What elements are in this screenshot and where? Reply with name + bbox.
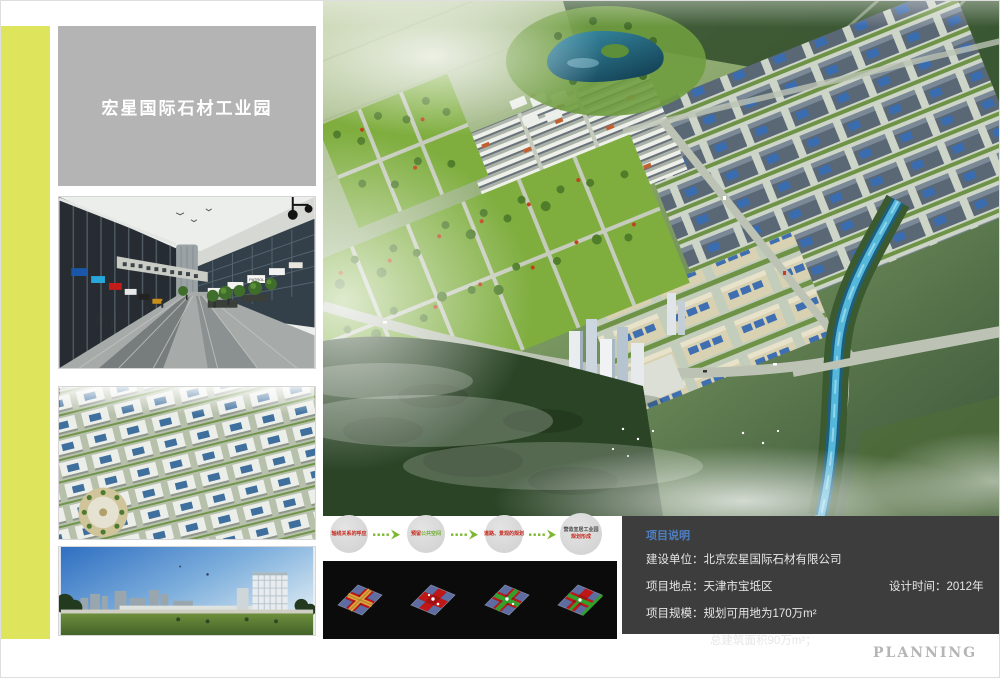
info-value: 北京宏星国际石材有限公司 <box>704 554 842 566</box>
storefront-sign-label: PATROL <box>249 277 265 282</box>
photo-aerial-rendering <box>58 386 316 540</box>
project-info-panel: 项目说明 建设单位：北京宏星国际石材有限公司 项目地点：天津市宝坻区 设计时间：… <box>622 516 1000 634</box>
info-label: 项目规模： <box>646 608 704 620</box>
concept-diagrams-panel <box>323 561 617 639</box>
info-label: 项目地点： <box>646 581 704 593</box>
main-tower <box>253 572 288 611</box>
masterplan-rendering <box>323 1 1000 516</box>
info-row-location: 项目地点：天津市宝坻区 设计时间：2012年 <box>646 578 1000 594</box>
flow-arrow-icon <box>372 529 402 540</box>
street-rendering-graphic: PATROL <box>59 197 315 368</box>
concept-diagram-green-cross <box>479 575 535 625</box>
concept-diagram-green-bands <box>552 575 608 625</box>
flow-step-1: 轴线关系的呼应 <box>330 515 368 553</box>
concept-diagram-axis-cross <box>332 575 388 625</box>
photo-skyline-rendering <box>58 546 316 636</box>
accent-stripe <box>1 26 50 639</box>
skyline-rendering-graphic <box>59 547 315 635</box>
planning-watermark: PLANNING <box>873 645 977 661</box>
concept-flow: 轴线关系的呼应 预留公共空间 道路、景观的规划 营造宜居工业园 规划形成 <box>323 513 619 561</box>
flow-step-3: 道路、景观的规划 <box>485 515 523 553</box>
flow-step-3-label: 道路、景观的规划 <box>484 531 524 538</box>
flow-step-2: 预留公共空间 <box>407 515 445 553</box>
info-value: 天津市宝坻区 <box>704 581 773 593</box>
info-value: 总建筑面积90万m²； <box>710 635 817 647</box>
project-info-title: 项目说明 <box>646 527 1000 543</box>
flow-step-4-line1: 营造宜居工业园 <box>563 527 598 534</box>
title-panel: 宏星国际石材工业园 <box>58 26 316 186</box>
flow-step-4: 营造宜居工业园 规划形成 <box>560 513 602 555</box>
info-row-owner: 建设单位：北京宏星国际石材有限公司 <box>646 551 1000 567</box>
photo-street-rendering: PATROL <box>58 196 316 369</box>
flow-step-2-label: 预留公共空间 <box>411 531 441 538</box>
flow-arrow-icon <box>450 529 480 540</box>
masterplan-graphic <box>323 1 1000 516</box>
info-label: 建设单位： <box>646 554 704 566</box>
presentation-board: 宏星国际石材工业园 <box>0 0 1000 678</box>
project-title: 宏星国际石材工业园 <box>102 94 273 119</box>
info-row-scale: 项目规模：规划可用地为170万m² <box>646 605 1000 621</box>
info-design-time: 设计时间：2012年 <box>889 578 984 594</box>
flow-step-1-label: 轴线关系的呼应 <box>331 531 366 538</box>
flow-step-4-line2: 规划形成 <box>571 534 591 541</box>
aerial-rendering-graphic <box>59 387 315 539</box>
flow-arrow-icon <box>528 529 558 540</box>
concept-diagram-nodes <box>405 575 461 625</box>
info-value: 规划可用地为170万m² <box>704 608 817 620</box>
